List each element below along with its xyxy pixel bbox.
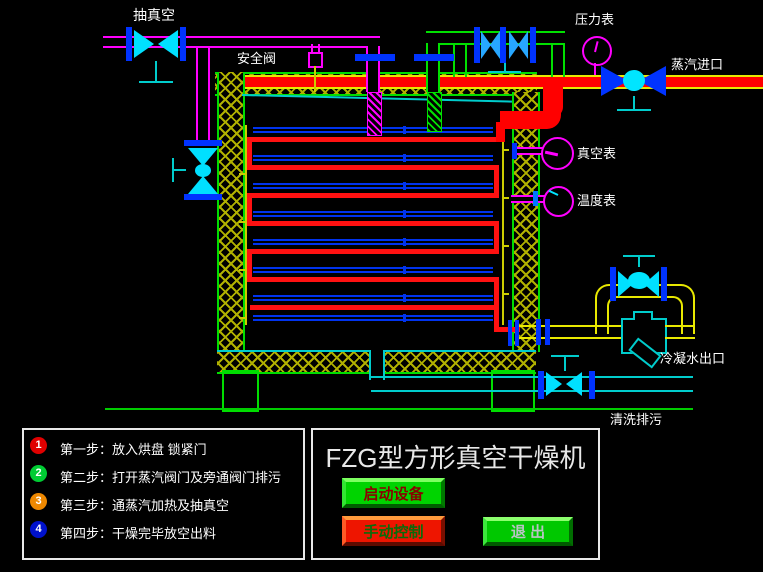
drain-pipe-horizontal bbox=[371, 376, 693, 392]
trap-bypass-valve-ball bbox=[628, 272, 650, 289]
drain-valve-handle bbox=[551, 355, 579, 357]
branch-valve-ball bbox=[195, 164, 211, 177]
steam-pipe-entry bbox=[496, 122, 505, 142]
condensate-outlet-label: 冷凝水出口 bbox=[660, 351, 725, 366]
vacuum-pipe-drop bbox=[366, 46, 380, 92]
steam-inlet-label: 蒸汽进口 bbox=[671, 57, 723, 72]
bypass-valve-icon bbox=[518, 31, 528, 59]
wash-drain-label: 清洗排污 bbox=[610, 412, 662, 427]
steam-trap-cap bbox=[633, 311, 653, 320]
bypass-valve-flange bbox=[500, 27, 506, 63]
shelf-frame-stub bbox=[239, 317, 246, 319]
safety-valve-icon bbox=[311, 44, 320, 52]
tray bbox=[253, 183, 493, 189]
temperature-gauge-stem bbox=[511, 195, 545, 203]
drain-valve-flange bbox=[589, 371, 595, 399]
bypass-nozzle-flange bbox=[414, 54, 454, 61]
condensate-pipe-tail bbox=[665, 325, 695, 339]
start-device-button[interactable]: 启动设备 bbox=[342, 478, 445, 508]
shelf-frame-stub bbox=[502, 149, 509, 151]
tray bbox=[253, 239, 493, 245]
tray-tick bbox=[403, 266, 406, 274]
coil-bend-right bbox=[494, 165, 499, 198]
vacuum-valve-stem bbox=[155, 61, 157, 81]
coil-bend-left bbox=[247, 249, 252, 282]
exit-button[interactable]: 退 出 bbox=[483, 517, 573, 546]
step-number-badge: 2 bbox=[30, 465, 47, 482]
vessel-leg-left bbox=[222, 370, 259, 412]
tray bbox=[253, 295, 493, 301]
bypass-nozzle-stub bbox=[427, 92, 442, 132]
machine-title: FZG型方形真空干燥机 bbox=[313, 438, 598, 475]
safety-valve-label: 安全阀 bbox=[237, 51, 276, 66]
shelf-frame-stub bbox=[502, 197, 509, 199]
bypass-valve-flange bbox=[530, 27, 536, 63]
trap-bypass-valve-flange bbox=[610, 267, 616, 301]
vacuum-nozzle-stub bbox=[367, 92, 382, 136]
coil-run bbox=[250, 137, 499, 142]
bypass-valve-flange bbox=[474, 27, 480, 63]
trap-bypass-valve-flange bbox=[661, 267, 667, 301]
branch-valve-flange bbox=[184, 140, 222, 146]
bypass-return-drop bbox=[551, 43, 565, 77]
control-panel: FZG型方形真空干燥机 启动设备 手动控制 退 出 bbox=[311, 428, 600, 560]
trap-bypass-valve-stem bbox=[638, 257, 640, 267]
tray-tick bbox=[403, 238, 406, 246]
steps-panel: 1 第一步：放入烘盘 锁紧门 2 第二步：打开蒸汽阀门及旁通阀门排污 3 第三步… bbox=[22, 428, 305, 560]
shelf-frame-stub bbox=[502, 245, 509, 247]
pressure-gauge-stem bbox=[594, 63, 596, 75]
coil-run bbox=[250, 193, 499, 198]
tray-tick bbox=[403, 126, 406, 134]
coil-outlet-flange bbox=[508, 320, 512, 346]
pressure-gauge-label: 压力表 bbox=[575, 12, 614, 27]
coil-run bbox=[250, 277, 499, 282]
condensate-flange bbox=[536, 319, 541, 345]
step-text: 第二步：打开蒸汽阀门及旁通阀门排污 bbox=[60, 467, 281, 486]
steam-inlet-valve-stand bbox=[617, 109, 651, 111]
coil-run bbox=[250, 221, 499, 226]
steam-pipe-main bbox=[245, 75, 763, 89]
vacuum-nozzle-flange bbox=[355, 54, 395, 61]
shelf-frame-stub bbox=[239, 269, 246, 271]
shelf-frame-stub bbox=[239, 221, 246, 223]
vacuum-valve-stand bbox=[139, 81, 173, 83]
steam-pipe-elbow-left bbox=[500, 111, 561, 129]
steam-inlet-valve-stem bbox=[633, 96, 635, 109]
step-number-badge: 3 bbox=[30, 493, 47, 510]
bypass-tee-drop bbox=[453, 43, 467, 77]
step-text: 第三步：通蒸汽加热及抽真空 bbox=[60, 495, 229, 514]
vessel-right-wall bbox=[512, 92, 540, 352]
temperature-gauge-flange bbox=[533, 191, 538, 206]
vacuum-valve-flange bbox=[126, 27, 132, 61]
tray-tick bbox=[403, 210, 406, 218]
tray-tick bbox=[403, 314, 406, 322]
trap-bypass-valve-handle bbox=[623, 255, 655, 257]
bypass-inlet-drop bbox=[426, 43, 440, 92]
step-text: 第四步：干燥完毕放空出料 bbox=[60, 523, 216, 542]
step-number-badge: 1 bbox=[30, 437, 47, 454]
branch-valve-handle bbox=[172, 169, 186, 171]
step-number-badge: 4 bbox=[30, 521, 47, 538]
condensate-flange bbox=[545, 319, 550, 345]
vessel-left-wall bbox=[217, 72, 245, 352]
tray-tick bbox=[403, 154, 406, 162]
safety-valve-riser bbox=[314, 66, 316, 92]
coil-bend-left bbox=[247, 137, 252, 170]
step-text: 第一步：放入烘盘 锁紧门 bbox=[60, 439, 207, 458]
vacuum-valve-flange bbox=[180, 27, 186, 61]
vacuum-valve-icon bbox=[158, 30, 178, 58]
drain-valve-stem bbox=[564, 357, 566, 371]
tray bbox=[253, 267, 493, 273]
drain-valve-icon bbox=[546, 372, 562, 396]
shelf-frame-right bbox=[502, 125, 504, 325]
bypass-valve-icon bbox=[490, 31, 500, 59]
vacuum-line-label: 抽真空 bbox=[133, 8, 175, 23]
bypass-valve-stem bbox=[504, 63, 506, 71]
shelf-frame-stub bbox=[502, 293, 509, 295]
vacuum-gauge-stem bbox=[517, 147, 543, 155]
tray-tick bbox=[403, 182, 406, 190]
vacuum-gauge-flange bbox=[512, 143, 517, 159]
manual-control-button[interactable]: 手动控制 bbox=[342, 516, 445, 546]
coil-run bbox=[250, 165, 499, 170]
vacuum-valve-icon bbox=[134, 30, 154, 58]
shelf-frame-stub bbox=[239, 173, 246, 175]
vacuum-branch-drop bbox=[196, 46, 210, 142]
tray-tick bbox=[403, 294, 406, 302]
coil-run bbox=[250, 249, 499, 254]
coil-bend-right bbox=[494, 277, 499, 332]
floor-line bbox=[105, 408, 693, 410]
steam-inlet-valve-ball bbox=[623, 70, 645, 91]
tray bbox=[253, 315, 493, 321]
coil-bend-right bbox=[494, 221, 499, 254]
hmi-screen: 抽真空 安全阀 压力表 蒸汽进口 真空表 bbox=[0, 0, 763, 572]
temperature-gauge-label: 温度表 bbox=[577, 193, 616, 208]
branch-valve-flange bbox=[184, 194, 222, 200]
tray bbox=[253, 155, 493, 161]
coil-bend-left bbox=[247, 193, 252, 226]
tray bbox=[253, 211, 493, 217]
drain-valve-flange bbox=[538, 371, 544, 399]
coil-run bbox=[250, 305, 499, 310]
vacuum-gauge-label: 真空表 bbox=[577, 146, 616, 161]
bypass-valve-stand bbox=[488, 71, 521, 73]
branch-valve-icon bbox=[188, 176, 218, 194]
drain-valve-icon bbox=[566, 372, 582, 396]
